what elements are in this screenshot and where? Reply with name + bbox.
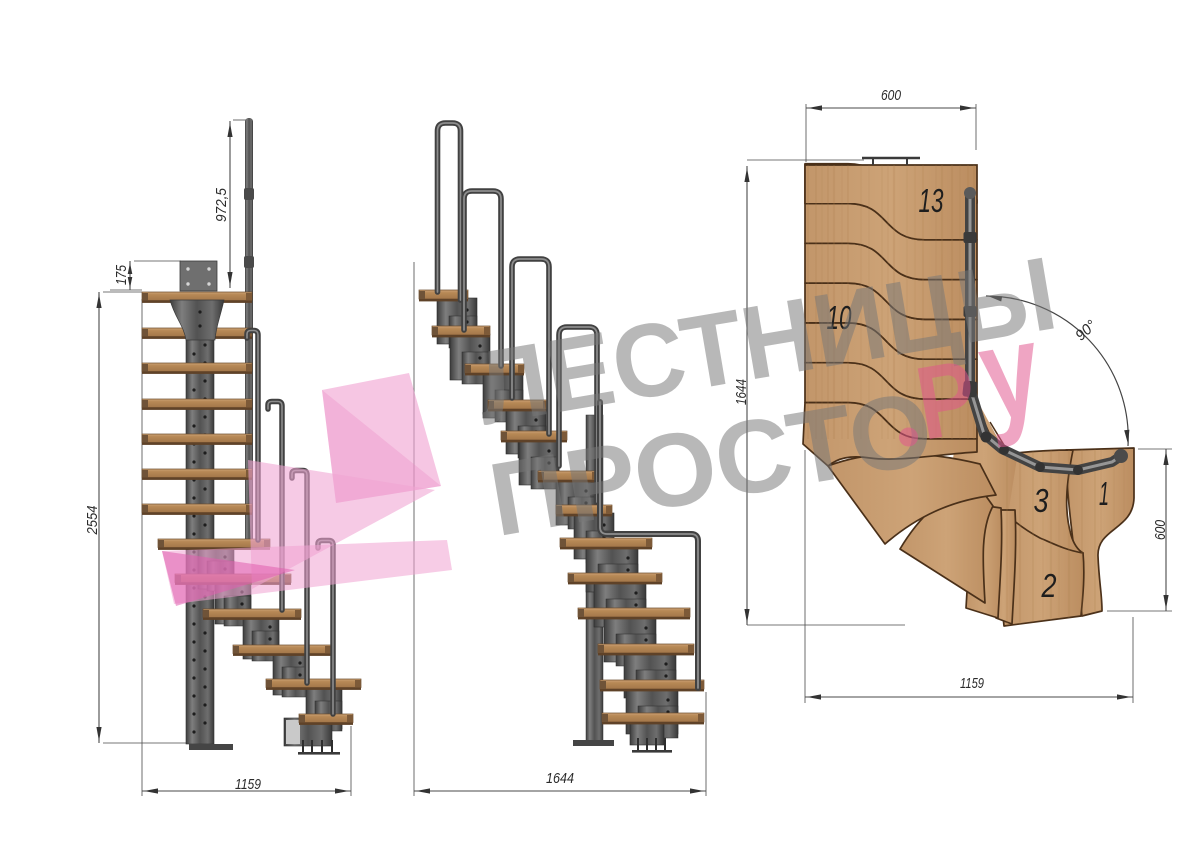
svg-text:1: 1	[1099, 475, 1109, 512]
svg-text:600: 600	[1152, 519, 1169, 540]
svg-text:13: 13	[919, 182, 944, 219]
svg-text:3: 3	[1034, 482, 1050, 519]
svg-text:1159: 1159	[960, 675, 984, 692]
svg-text:1644: 1644	[546, 770, 574, 787]
svg-text:2: 2	[1041, 567, 1057, 604]
svg-text:972,5: 972,5	[213, 187, 230, 222]
svg-text:2554: 2554	[84, 506, 101, 536]
svg-text:600: 600	[881, 87, 902, 104]
svg-text:175: 175	[113, 264, 130, 285]
svg-text:1159: 1159	[235, 776, 262, 793]
